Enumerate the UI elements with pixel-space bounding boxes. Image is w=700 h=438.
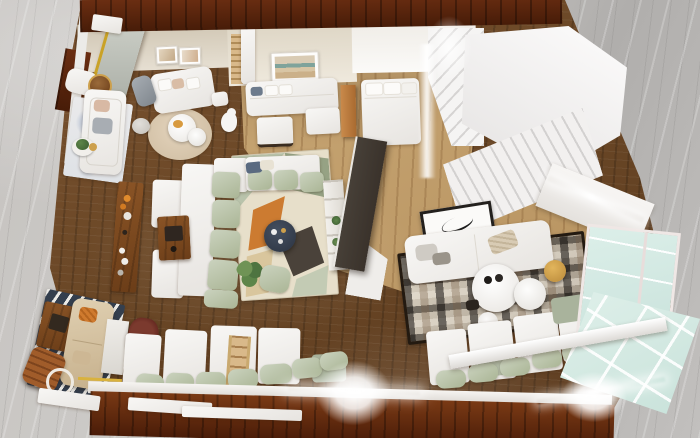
console-decor-plate [123, 212, 132, 221]
loveseat-pillow-3 [185, 76, 201, 90]
sofa-seam [474, 234, 479, 270]
console-decor-white-1 [119, 247, 125, 253]
floor-decor-dark [465, 299, 479, 311]
sofa-white-left [79, 89, 127, 176]
bench-pillow-b2 [467, 363, 498, 384]
bed [361, 78, 421, 146]
bench-pillow-b1 [435, 369, 466, 389]
art-print [275, 55, 316, 78]
pillow-cream [260, 160, 275, 171]
console-decor-dark [122, 230, 127, 235]
gold-decor [89, 143, 97, 151]
plant-small [76, 139, 89, 150]
table-decor-small [170, 246, 176, 252]
sofa-throw-tan [487, 229, 520, 256]
table-tray-dark [164, 226, 183, 242]
table-decor-white [271, 229, 277, 235]
table-decor-gold [173, 120, 183, 128]
daybed-pillow-1 [264, 85, 279, 97]
bed-duvet-fold [364, 96, 416, 99]
side-table-square [211, 91, 229, 107]
cushion-top-3 [299, 171, 324, 192]
daybed-chaise [305, 107, 340, 135]
console-decor-gray [117, 269, 123, 275]
cushion-1 [211, 171, 240, 198]
wall-art-frame-2 [179, 47, 202, 66]
art-print [159, 49, 176, 62]
cushion-2 [212, 200, 241, 229]
bench-pillow-a5 [259, 363, 292, 385]
daybed-pillow-2 [278, 84, 293, 96]
ottoman-gray [132, 118, 150, 134]
partition-wall [241, 26, 255, 84]
art-print [182, 50, 198, 63]
coffee-table-navy [264, 220, 296, 252]
cushion-3 [209, 229, 241, 259]
table-decor-gold [281, 228, 286, 233]
ottoman-white [256, 116, 293, 147]
bed-pillow-1 [365, 82, 383, 96]
cushion-top-2 [274, 170, 299, 191]
scene-3d-floorplan [0, 0, 700, 438]
dog-figurine-head [227, 108, 236, 117]
pouf [258, 264, 292, 295]
cushion-4 [207, 259, 240, 292]
round-table-large [472, 264, 520, 312]
table-decor-black-2 [495, 274, 503, 282]
loveseat-pillow-1 [157, 78, 173, 92]
daybed-pillow-navy [250, 87, 262, 97]
loveseat-pillow-2 [171, 78, 184, 90]
bed-pillow-2 [383, 82, 401, 96]
round-table-small [514, 278, 546, 310]
console-decor-orange-1 [123, 195, 130, 202]
table-decor-black-1 [484, 276, 492, 284]
oak-wardrobe [341, 85, 357, 137]
gold-stool [544, 260, 566, 282]
coffee-table-wood [157, 215, 191, 261]
sofa-pillow-dark [432, 252, 451, 266]
table-decor-white-2 [278, 239, 283, 244]
throw-orange [78, 306, 98, 323]
nesting-table-small [188, 128, 206, 146]
console-decor-white-2 [121, 258, 128, 265]
console-decor-orange-2 [120, 203, 126, 209]
wall-art-frame-1 [156, 45, 179, 64]
bed-pillow-3 [401, 82, 417, 95]
throw-blanket [92, 117, 113, 134]
sofa-tan-seam [72, 339, 102, 345]
pillow-tan [72, 350, 92, 366]
throw-pillow [93, 99, 110, 112]
daybed-seam [250, 94, 334, 99]
cushion-5 [203, 289, 238, 309]
table-tray [48, 313, 70, 333]
glow-top-right-wall [426, 16, 472, 80]
